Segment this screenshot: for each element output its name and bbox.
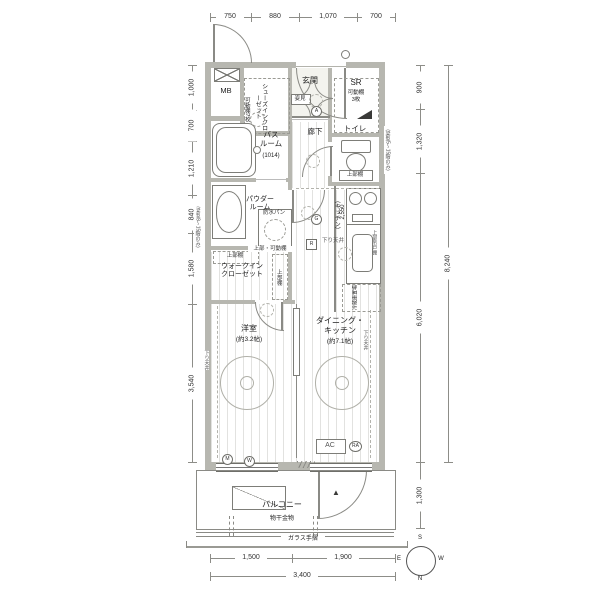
- toilet-door-leaf: [330, 146, 332, 176]
- washer-icon: [264, 219, 286, 241]
- ceiling-line-top: [296, 188, 379, 189]
- hallway-label: 廊下: [300, 127, 330, 136]
- genkan-label: 玄関: [294, 76, 326, 86]
- dim-left-3540: 3,540: [188, 368, 197, 400]
- burner-icon: [349, 192, 362, 205]
- corridor-door-leaf: [213, 24, 215, 62]
- sliding-door-leaf: [293, 308, 300, 376]
- dim-tick: [251, 13, 252, 22]
- wic-shelf-side-label: 上部棚: [275, 260, 281, 294]
- grill-icon: [352, 214, 373, 222]
- fridge-label: 冷蔵庫置場: [353, 283, 360, 313]
- bathroom-label: バス ルーム: [254, 130, 288, 148]
- dim-top-880: 880: [261, 12, 289, 21]
- washer-pan-label: 防水パン: [258, 210, 290, 217]
- dim-left-1210: 1,210: [188, 153, 197, 185]
- dim-tick: [444, 462, 453, 463]
- dim-tick: [416, 109, 425, 110]
- dim-right-6020: 6,020: [416, 302, 425, 334]
- glass-rail-label: ガラス手摺: [281, 536, 325, 543]
- wall-wic-bottom-r: [283, 300, 295, 304]
- dim-tick: [395, 13, 396, 22]
- floor-plan: MB シューズインクローゼット 可動棚7枚 玄関 姿見 SR 可動棚 3枚 トイ…: [0, 0, 600, 600]
- wall-toilet-bottom: [332, 182, 379, 186]
- dim-tick: [416, 173, 425, 174]
- dim-right-900: 900: [416, 72, 425, 104]
- wall-wic-bottom-l: [205, 300, 255, 304]
- western-room-label: 洋室: [214, 324, 284, 334]
- dim-bottom-1500: 1,500: [235, 553, 267, 562]
- dim-tick: [188, 462, 197, 463]
- dim-top-1070: 1,070: [312, 12, 344, 21]
- dim-tick: [210, 13, 211, 22]
- downlight-icon: [260, 303, 274, 317]
- powder-door-leaf: [292, 190, 294, 222]
- dim-left-1000: 1,000: [188, 72, 197, 104]
- dim-tick: [299, 13, 300, 22]
- toilet-shelf-label: 上部棚: [339, 172, 371, 179]
- ceiling-label-left: 下り天井: [203, 350, 209, 370]
- sr-label: SR: [338, 78, 374, 88]
- fridge-space-outline: [342, 284, 381, 312]
- dim-top-750: 750: [216, 12, 244, 21]
- burner-icon: [364, 192, 377, 205]
- drain-triangle-icon: ▲: [330, 488, 342, 498]
- dim-tick: [292, 554, 293, 563]
- wic-shelf-top-label: 上部棚: [213, 253, 257, 260]
- dim-top-700: 700: [362, 12, 390, 21]
- dim-right-1320: 1,320: [416, 126, 425, 158]
- dim-tick: [357, 13, 358, 22]
- entry-threshold: [296, 66, 346, 67]
- downlight-icon: [306, 154, 320, 168]
- dim-left-1580: 1,580: [188, 253, 197, 285]
- symbol-a: A: [311, 106, 322, 117]
- dim-tick: [395, 572, 396, 581]
- compass-e: E: [394, 556, 404, 563]
- genkan-step2: [292, 119, 330, 120]
- ceiling-label-mid: 下り天井: [318, 238, 348, 245]
- glass-rail-cap: [407, 541, 408, 548]
- compass-n: N: [415, 576, 425, 583]
- dim-tick: [444, 65, 453, 66]
- laundry-label: 物干金物: [262, 516, 302, 523]
- western-room-size: (約3.2帖): [214, 336, 284, 344]
- laundry-pole-mark: [229, 516, 230, 536]
- bathtub-inner: [216, 127, 252, 173]
- wic-label: ウォークイン クローゼット: [211, 263, 273, 280]
- downlight-icon: [338, 247, 352, 261]
- laundry-pole-mark: [313, 516, 314, 536]
- wall-mb-bottom: [205, 116, 245, 121]
- vanity-bowl-icon: [216, 191, 242, 233]
- compass-w: W: [436, 556, 446, 563]
- kitchen-label: （キッチン）: [333, 190, 339, 240]
- doorbell-icon: [341, 50, 350, 59]
- dim-bottom-1900: 1,900: [327, 553, 359, 562]
- meter-box-icon: [214, 68, 240, 82]
- corridor-door-arc: [213, 24, 252, 63]
- dim-tick: [210, 554, 211, 563]
- symbol-r: R: [306, 239, 317, 250]
- symbol-ra: RA: [349, 441, 362, 452]
- mb-label: MB: [214, 86, 238, 95]
- ceiling-light-center: [240, 376, 254, 390]
- dim-tick: [188, 195, 197, 196]
- dim-bottom-3400: 3,400: [286, 571, 318, 580]
- dim-tick: [188, 304, 197, 305]
- balcony-label: バルコニー: [258, 500, 306, 510]
- pan-shelf-label: 上部・可動棚: [248, 246, 292, 253]
- symbol-m: M: [222, 454, 233, 465]
- compass-icon: [406, 546, 436, 576]
- bath-door-line: [256, 179, 286, 180]
- toilet-label: トイレ: [336, 124, 374, 133]
- dim-left-840: 840: [188, 199, 197, 231]
- glass-rail-cap: [186, 541, 187, 548]
- mirror-label: 姿見: [291, 96, 309, 103]
- glass-rail-line: [186, 546, 408, 548]
- dim-tick: [416, 462, 425, 463]
- sr-shelf-label: 可動棚 3枚: [343, 90, 369, 103]
- ceiling-light-center: [335, 376, 349, 390]
- laundry-pole-mark: [317, 516, 318, 536]
- dim-tick: [210, 572, 211, 581]
- toilet-tank-icon: [341, 140, 371, 153]
- kitchen-hood-label: 上部吊戸棚: [371, 224, 376, 260]
- symbol-g: G: [311, 214, 322, 225]
- compass-s: S: [415, 535, 425, 542]
- dim-left-700: 700: [188, 110, 197, 142]
- dim-tick: [416, 528, 425, 529]
- wall-sr-bottom: [332, 133, 379, 137]
- beam-note-right: （梁型5〜15階のみ）: [384, 126, 390, 174]
- symbol-w: W: [244, 456, 255, 467]
- sink-icon: [352, 234, 373, 272]
- dim-tick: [416, 65, 425, 66]
- laundry-pole-mark: [233, 516, 234, 536]
- dim-tick: [188, 65, 197, 66]
- balcony-rail-line: [196, 532, 394, 533]
- ceiling-label-right: 下り天井: [362, 330, 368, 350]
- bathroom-size: (1014): [254, 153, 288, 160]
- dim-right-1300: 1,300: [416, 480, 425, 512]
- dim-right-8240: 8,240: [444, 248, 453, 280]
- ac-label: AC: [316, 442, 344, 450]
